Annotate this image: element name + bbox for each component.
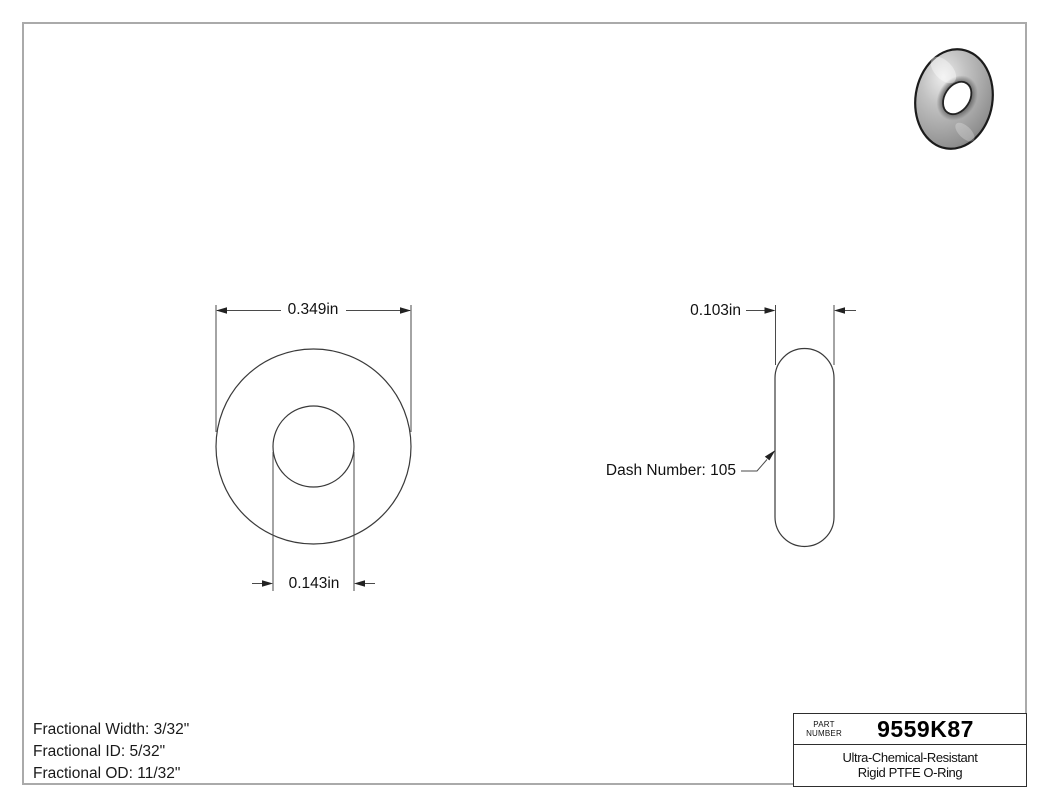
- part-number-value: 9559K87: [847, 716, 1026, 743]
- side-view-profile: [775, 349, 834, 547]
- id-dimension-label: 0.143in: [286, 575, 343, 593]
- part-caption-line1: PART: [801, 720, 847, 729]
- part-number-caption: PART NUMBER: [801, 720, 847, 738]
- fractional-id-text: Fractional ID: 5/32": [33, 741, 189, 763]
- fractional-specs: Fractional Width: 3/32" Fractional ID: 5…: [33, 719, 189, 785]
- part-number-row: PART NUMBER 9559K87: [794, 714, 1026, 745]
- dash-number-label: Dash Number: 105: [603, 462, 739, 480]
- fractional-width-text: Fractional Width: 3/32": [33, 719, 189, 741]
- drawing-canvas: 0.349in 0.143in 0.103in Dash Number: 105: [0, 0, 1050, 811]
- technical-drawing-lines: [0, 0, 1050, 811]
- part-number-title-block: PART NUMBER 9559K87 Ultra-Chemical-Resis…: [793, 713, 1027, 787]
- dimension-lines: [216, 305, 856, 591]
- part-description-line1: Ultra-Chemical-Resistant: [843, 751, 978, 766]
- part-caption-line2: NUMBER: [801, 729, 847, 738]
- width-dimension-label: 0.103in: [687, 302, 744, 320]
- o-ring-3d-render-icon: [913, 47, 995, 151]
- part-description-line2: Rigid PTFE O-Ring: [858, 766, 962, 781]
- dash-leader-line: [741, 460, 767, 472]
- fractional-od-text: Fractional OD: 11/32": [33, 763, 189, 785]
- front-view-outer-circle: [216, 349, 411, 544]
- front-view-inner-circle: [273, 406, 354, 487]
- part-description: Ultra-Chemical-Resistant Rigid PTFE O-Ri…: [794, 745, 1026, 786]
- od-dimension-label: 0.349in: [285, 301, 342, 319]
